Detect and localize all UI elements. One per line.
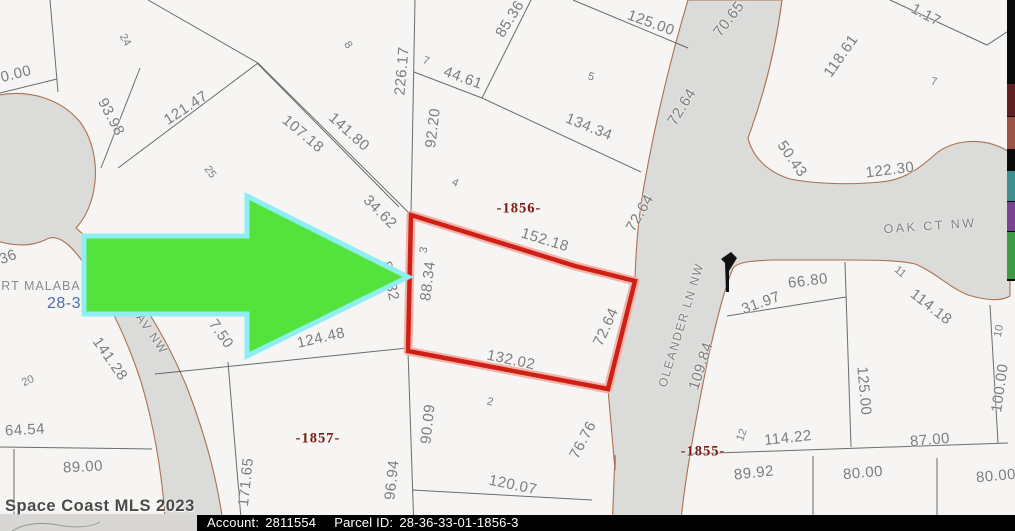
legend-color-segment: [1007, 232, 1015, 279]
legend-color-segment: [1007, 84, 1015, 116]
legend-color-segment: [1007, 117, 1015, 149]
legend-color-segment: [1007, 171, 1015, 201]
parcel-id-value: 28-36-33-01-1856-3: [399, 515, 518, 530]
patch-curve: [0, 514, 197, 531]
account-label: Account:: [207, 515, 259, 530]
account-value: 2811554: [265, 515, 316, 530]
parcel-map-canvas: [0, 0, 1015, 531]
legend-color-segment: [1007, 202, 1015, 231]
bottom-left-patch: [0, 514, 197, 531]
mls-parcel-map: 0.0093.98121.47107.18141.80226.1792.2044…: [0, 0, 1015, 531]
parcel-id-label: Parcel ID:: [334, 515, 393, 530]
legend-strip: [1007, 0, 1015, 281]
mls-watermark: Space Coast MLS 2023: [5, 497, 195, 516]
parcel-info-bar: Account:2811554Parcel ID:28-36-33-01-185…: [197, 515, 1015, 531]
map-background: [0, 0, 1015, 531]
